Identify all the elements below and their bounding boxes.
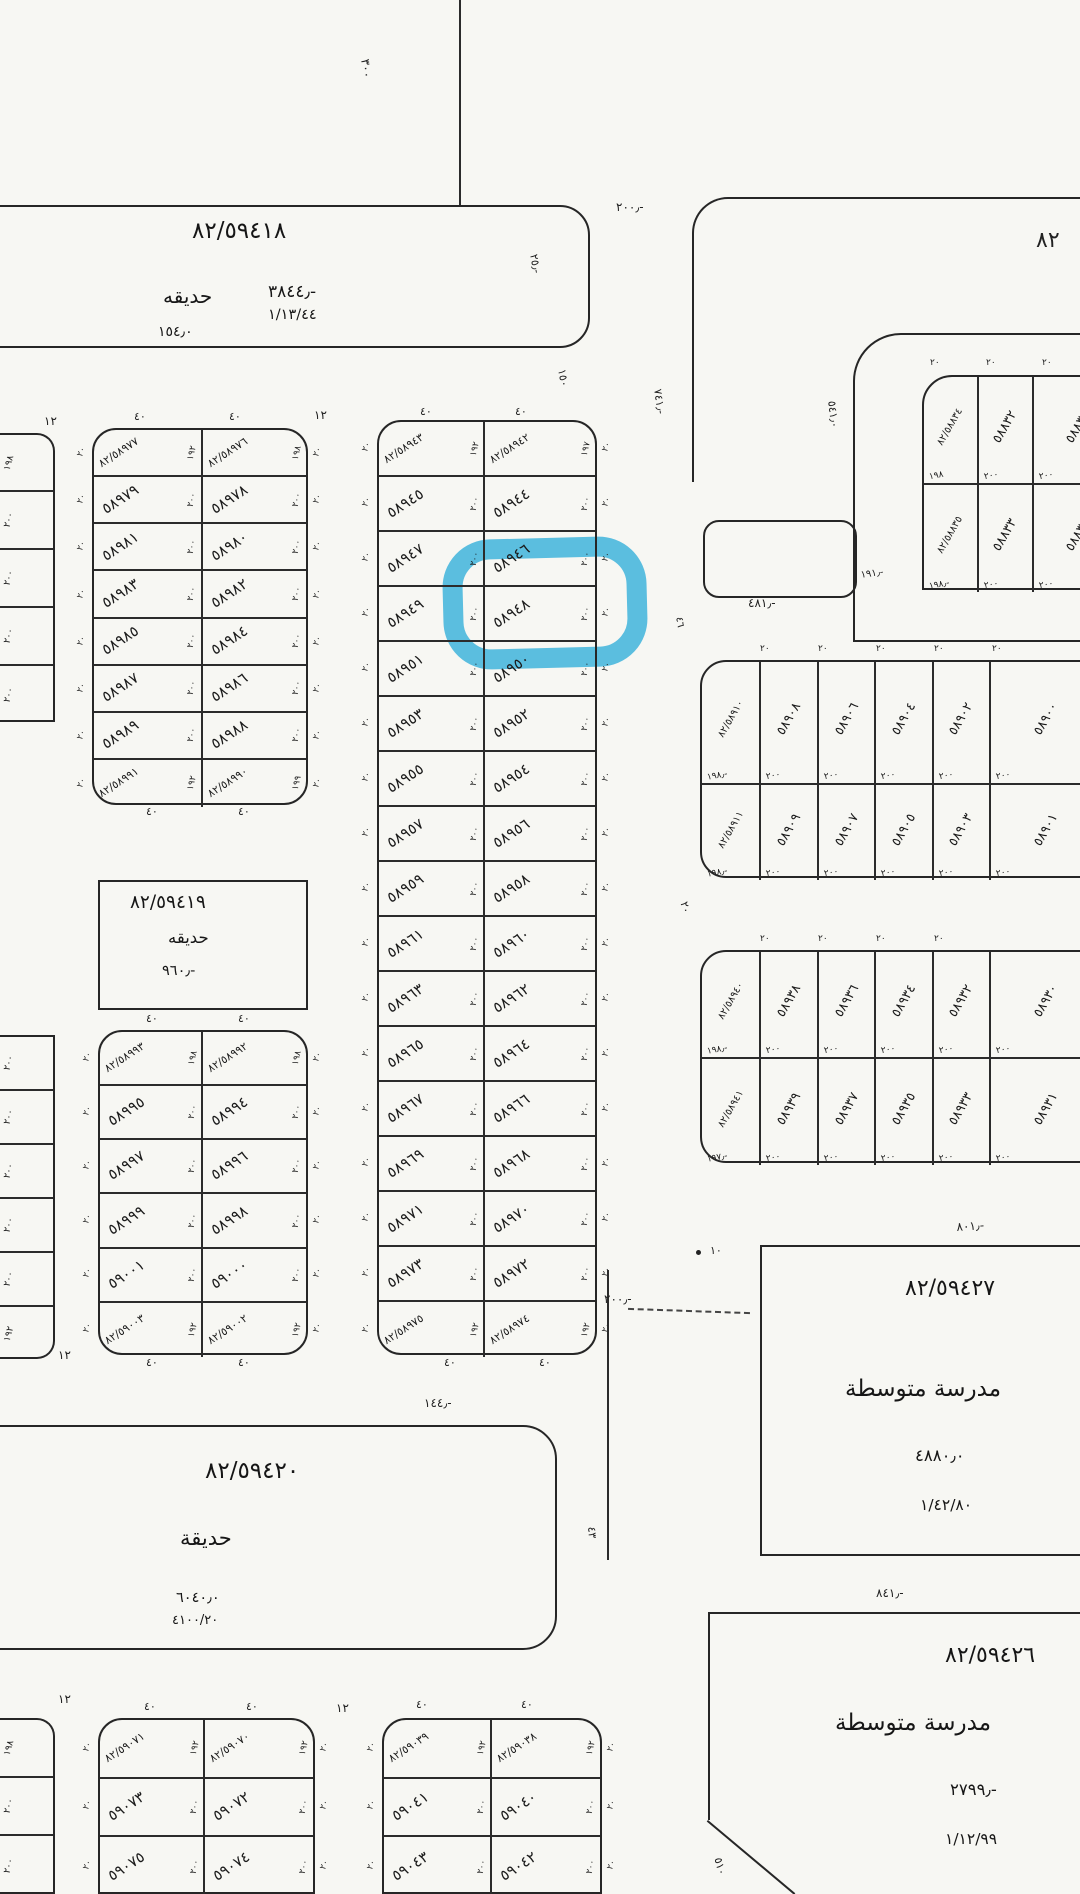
plot-number: ٥٨٩٥٨ <box>489 869 533 906</box>
plot-row: ٢٠٢٠٨٢/٥٨٩٧٥١٩٢٨٢/٥٨٩٧٤١٩٢ <box>379 1302 595 1357</box>
plot-number: ٥٨٩٦٣ <box>383 979 427 1016</box>
dim-label-tick20: ٢٠ <box>930 358 940 368</box>
plot-dimension: ٢٠٠ <box>186 1266 199 1283</box>
plot-number: ٨٢/٥٨٩٧٥ <box>381 1311 426 1346</box>
dim-label-tick20: ٢٠ <box>934 934 944 944</box>
row-width-tick: ٢٠ <box>360 991 373 1004</box>
plot-dimension: ٢٠٠ <box>468 1155 481 1172</box>
plot-dimension: ٢٠٠ <box>468 990 481 1007</box>
plot-cell: ٥٨٩٣١٢٠٠ <box>991 1059 1080 1165</box>
dim-label-a801: ٨٠١٫- <box>956 1218 984 1234</box>
row-width-tick: ٢٠ <box>81 1322 94 1335</box>
plot-number: ٥٨٩٥٤ <box>489 759 533 796</box>
plot-dimension: ٢٠٠ <box>186 1104 199 1121</box>
plot-cell: ٥٨٨٣٢٢٠٠ <box>979 377 1034 483</box>
plot-dimension: ٢٠٠ <box>291 1212 304 1229</box>
plot-row: ٢٠٢٠٥٨٩٦٥٢٠٠٥٨٩٦٤٢٠٠ <box>379 1027 595 1082</box>
block-small-empty <box>703 520 857 598</box>
plot-number: ٥٨٩٣٨ <box>774 982 804 1020</box>
dim-label-w40: ٤٠ <box>146 1356 158 1369</box>
plot-dimension: ٢٠٠ <box>1038 470 1054 482</box>
dim-label-v300: ٣٠٠ <box>358 58 374 79</box>
plot-cell: ٥٨٩٠٢٢٠٠ <box>934 662 991 783</box>
plot-cell: ٥٨٩٠٨٢٠٠ <box>761 662 818 783</box>
row-width-tick: ٢٠ <box>601 716 614 729</box>
edge-strip-lower: ٢٠٠٢٠٠٢٠٠٢٠٠٢٠٠١٩٢ <box>0 1035 55 1359</box>
plot-dimension: ٢٠٠ <box>823 1044 839 1056</box>
plot-number: ٥٨٩٦٧ <box>383 1089 427 1126</box>
plot-cell: ٥٨٩٣٢٢٠٠ <box>934 952 991 1057</box>
block-59427-area: ٤٨٨٠٫٠ <box>915 1446 965 1465</box>
row-width-tick: ٢٠ <box>360 1266 373 1279</box>
plot-dimension: ٢٠٠ <box>291 586 304 603</box>
plot-cell: ٨٢/٥٨٨٣٤١٩٨ <box>924 377 979 483</box>
plot-number: ٨٢/٥٩٠٣٨ <box>494 1730 539 1765</box>
plot-number: ٥٨٩٨٨ <box>207 716 251 753</box>
plot-number: ٥٨٩٦٢ <box>489 979 533 1016</box>
plot-number: ٨٢/٥٨٩٩٣ <box>102 1040 147 1075</box>
plot-number: ٥٨٨٣٣ <box>990 516 1020 554</box>
plot-dimension: ٢٠٠ <box>186 491 199 508</box>
plot-dimension: ٢٠٠ <box>995 867 1011 879</box>
plot-dimension: ٢٠٠ <box>580 1265 593 1282</box>
row-width-tick: ٢٠ <box>601 1156 614 1169</box>
plot-cell: ٥٨٩٦١٢٠٠ <box>379 917 485 970</box>
row-width-tick: ٢٠ <box>360 881 373 894</box>
plot-cell: ٥٨٩٤٦٢٠٠ <box>485 532 595 585</box>
dim-label-v43: ٤٣ <box>585 1526 599 1539</box>
plot-number: ٥٩٠٠١ <box>104 1255 148 1292</box>
plot-number: ٥٨٩٣٣ <box>946 1090 976 1128</box>
plot-dimension: ١٩٨ <box>2 1739 17 1757</box>
edge-plot-cell: ٢٠٠ <box>0 492 53 550</box>
plot-dimension: ١٩٨٫- <box>706 769 728 782</box>
dim-label-a10: ١٠ <box>710 1244 722 1257</box>
plot-number: ٥٨٩٦٥ <box>383 1034 427 1071</box>
plot-cell: ٥٨٩٥٣٢٠٠ <box>379 697 485 750</box>
survey-dashed-line <box>628 1308 750 1314</box>
dim-label-t200: ٢٠٠٫- <box>616 200 644 214</box>
plot-cell: ٥٨٩٩٥٢٠٠ <box>100 1086 203 1138</box>
plot-dimension: ١٩٩ <box>291 775 304 792</box>
plot-dimension: ٢٠٠ <box>580 1045 593 1062</box>
plot-dimension: ١٩٧٫- <box>706 1151 728 1164</box>
plot-number: ٥٨٩٥٣ <box>383 704 427 741</box>
block-59418-id: ٨٢/٥٩٤١٨ <box>192 218 286 244</box>
plot-number: ٥٨٩٣٠ <box>1030 982 1060 1020</box>
plot-cell: ٨٢/٥٨٩٤٠١٩٨٫- <box>702 952 761 1057</box>
plot-dimension: ٢٠٠ <box>468 715 481 732</box>
plot-number: ٥٨٩٣٤ <box>889 982 919 1020</box>
plot-dimension: ٢٠٠ <box>186 633 199 650</box>
plot-dimension: ٢٠٠ <box>580 660 593 677</box>
plot-dimension: ٢٠٠ <box>580 935 593 952</box>
block-59426-id: ٨٢/٥٩٤٢٦ <box>945 1643 1035 1668</box>
plot-dimension: ٢٠٠ <box>880 867 896 879</box>
edge-plot-cell: ٢٠٠ <box>0 1145 53 1199</box>
plot-cell: ٥٨٩٤٧٢٠٠ <box>379 532 485 585</box>
row-width-tick: ٢٠ <box>360 551 373 564</box>
plot-row: ٢٠٢٠٥٨٩٥٧٢٠٠٥٨٩٥٦٢٠٠ <box>379 807 595 862</box>
plot-number: ٥٨٩٣٦ <box>831 982 861 1020</box>
block-59420-area: ٦٠٤٠٫٠ <box>176 1590 220 1606</box>
row-width-tick: ٢٠ <box>319 1858 332 1871</box>
plot-cell: ٥٨٩٤٤٢٠٠ <box>485 477 595 530</box>
row-width-tick: ٢٠ <box>360 936 373 949</box>
row-width-tick: ٢٠ <box>601 441 614 454</box>
plot-dimension: ١٩٢ <box>186 775 199 792</box>
plot-dimension: ٢٠٠ <box>291 633 304 650</box>
plot-cell: ٥٨٩٣٩٢٠٠ <box>761 1059 818 1165</box>
plot-row: ٢٠٢٠٥٨٩٨٩٢٠٠٥٨٩٨٨٢٠٠ <box>94 713 306 760</box>
plot-dimension: ١٩٨ <box>291 1050 304 1067</box>
plot-number: ٥٩٠٧٣ <box>104 1788 148 1825</box>
plot-dimension: ٢٠٠ <box>188 1858 201 1875</box>
row-width-tick: ٢٠ <box>601 1101 614 1114</box>
plot-cell: ٥٨٩٣٥٢٠٠ <box>876 1059 933 1165</box>
plot-number: ٥٨٩٨٧ <box>98 669 142 706</box>
plot-cell: ٥٩٠٧٤٢٠٠ <box>205 1837 313 1894</box>
dim-label-st12: ١٢ <box>44 414 57 428</box>
plot-row: ٢٠٢٠٨٢/٥٨٩٩١١٩٢٨٢/٥٨٩٩٠١٩٩ <box>94 760 306 807</box>
plot-cell: ٥٨٨٣١٢٠٠ <box>1034 485 1080 592</box>
block-59418-ref: ١/١٣/٤٤ <box>268 307 317 323</box>
plot-cell: ٥٩٠٤٣٢٠٠ <box>384 1837 492 1894</box>
plot-cell: ٨٢/٥٨٩٩٠١٩٩ <box>203 760 306 807</box>
plot-number: ٥٨٩٣١ <box>1030 1090 1060 1128</box>
plot-cell: ٥٨٩٨٠٢٠٠ <box>203 524 306 569</box>
plot-dimension: ٢٠٠ <box>291 1266 304 1283</box>
plot-cell-highlighted: ٥٨٩٤٨٢٠٠ <box>485 587 595 640</box>
plot-number: ٨٢/٥٨٩٩١ <box>96 765 141 800</box>
row-width-tick: ٢٠ <box>601 1266 614 1279</box>
plot-number: ٥٨٩٩٨ <box>207 1201 251 1238</box>
plot-grid-left_upper: ٢٠٢٠٨٢/٥٨٩٧٧١٩٢٨٢/٥٨٩٧٦١٩٨٢٠٢٠٥٨٩٧٩٢٠٠٥٨… <box>92 428 308 805</box>
plot-cell: ٥٨٩٧٢٢٠٠ <box>485 1247 595 1300</box>
plot-cell: ٨٢/٥٩٠٠٢١٩٢ <box>203 1303 306 1357</box>
plot-cell: ٨٢/٥٩٠٧٠١٩٢ <box>205 1720 313 1777</box>
row-width-tick: ٢٠ <box>360 771 373 784</box>
plot-dimension: ٢٠٠ <box>291 680 304 697</box>
row-width-tick: ٢٠ <box>75 540 88 553</box>
plot-dimension: ٢٠٠ <box>938 867 954 879</box>
plot-dimension: ١٩٢ <box>186 1322 199 1339</box>
block-59419-area: ٩٦٠٫- <box>162 963 195 979</box>
plot-number: ٥٨٩٤٩ <box>383 594 427 631</box>
dim-label-v741: ٧٤١٫- <box>651 388 667 415</box>
edge-plot-cell: ٢٠٠ <box>0 1091 53 1145</box>
plot-dimension: ١٩٨ <box>928 470 944 482</box>
plot-dimension: ٢٠٠ <box>938 770 954 782</box>
plot-cell: ٥٨٩٠٤٢٠٠ <box>876 662 933 783</box>
plot-dimension: ٢٠٠ <box>766 770 782 782</box>
plot-dimension: ٢٠٠ <box>291 727 304 744</box>
dim-label-tick20: ٢٠ <box>876 644 886 654</box>
dim-label-v150: ١٥٠ <box>555 368 571 388</box>
dim-label-s200: ٢٠٠٫- <box>604 1292 632 1306</box>
plot-row: ٢٠٢٠٥٩٠٤١٢٠٠٥٩٠٤٠٢٠٠ <box>384 1779 600 1838</box>
plot-dimension: ٢٠٠ <box>585 1858 598 1875</box>
plot-grid-right_b: ٨٢/٥٨٩٤٠١٩٨٫-٥٨٩٣٨٢٠٠٥٨٩٣٦٢٠٠٥٨٩٣٤٢٠٠٥٨٩… <box>700 950 1080 1163</box>
plot-dimension: ١٩٨ <box>291 444 304 461</box>
plot-dimension: ١٩٨٫- <box>706 1043 728 1056</box>
edge-strip-top: ١٩٨٢٠٠٢٠٠٢٠٠٢٠٠ <box>0 433 55 722</box>
row-width-tick: ٢٠ <box>312 681 325 694</box>
block-59426-name: مدرسة متوسطة <box>835 1710 991 1736</box>
plot-dimension: ٢٠٠ <box>468 495 481 512</box>
plot-row: ٢٠٢٠٨٢/٥٨٩٤٣١٩٢٨٢/٥٨٩٤٢١٩٧ <box>379 422 595 477</box>
dim-label-tick20: ٢٠ <box>1042 358 1052 368</box>
plot-dimension: ٢٠٠ <box>580 1155 593 1172</box>
plot-row: ٢٠٢٠٥٨٩٦١٢٠٠٥٨٩٦٠٢٠٠ <box>379 917 595 972</box>
plot-dimension: ٢٠٠ <box>468 550 481 567</box>
plot-dimension: ٢٠٠ <box>468 825 481 842</box>
plot-dimension: ٢٠٠ <box>580 770 593 787</box>
row-width-tick: ٢٠ <box>81 1740 94 1753</box>
plot-number: ٨٢/٥٨٩٧٧ <box>96 434 141 469</box>
edge-plot-cell: ١٩٢ <box>0 1307 53 1361</box>
plot-dimension: ١٩٨٫- <box>928 578 950 591</box>
plot-dimension: ٢٠٠ <box>2 511 17 529</box>
plot-cell: ٥٨٩٨٣٢٠٠ <box>94 571 203 616</box>
plot-dimension: ٢٠٠ <box>2 1162 17 1180</box>
block-59427-id: ٨٢/٥٩٤٢٧ <box>905 1276 995 1301</box>
plot-number: ٥٨٨٣١ <box>1063 516 1080 554</box>
plot-cell: ٥٨٩٥٥٢٠٠ <box>379 752 485 805</box>
plot-number: ٨٢/٥٨٩٧٦ <box>205 434 250 469</box>
row-width-tick: ٢٠ <box>312 493 325 506</box>
plot-dimension: ١٩٢ <box>188 1740 201 1757</box>
plot-cell: ٥٨٩٥٢٢٠٠ <box>485 697 595 750</box>
plot-dimension: ٢٠٠ <box>468 770 481 787</box>
plot-row: ٢٠٢٠٥٩٠٧٥٢٠٠٥٩٠٧٤٢٠٠ <box>100 1837 313 1894</box>
plot-grid-top_right: ٨٢/٥٨٨٣٤١٩٨٥٨٨٣٢٢٠٠٥٨٨٣٠٢٠٠٨٢/٥٨٨٣٥١٩٨٫-… <box>922 375 1080 590</box>
row-width-tick: ٢٠ <box>81 1105 94 1118</box>
edge-plot-cell: ١٩٨ <box>0 435 53 492</box>
plot-number: ٨٢/٥٨٩٧٤ <box>487 1311 532 1346</box>
plot-dimension: ٢٠٠ <box>468 605 481 622</box>
dim-label-st12: ١٢ <box>58 1692 71 1706</box>
plot-dimension: ١٩٢ <box>580 1321 593 1338</box>
row-width-tick: ٢٠ <box>365 1740 378 1753</box>
plot-grid-bottom_b: ٢٠٢٠٨٢/٥٩٠٣٩١٩٢٨٢/٥٩٠٣٨١٩٢٢٠٢٠٥٩٠٤١٢٠٠٥٩… <box>382 1718 602 1894</box>
plot-dimension: ٢٠٠ <box>186 727 199 744</box>
plot-cell: ٥٨٩٦٦٢٠٠ <box>485 1082 595 1135</box>
plot-row: ٢٠٢٠٥٨٩٨٣٢٠٠٥٨٩٨٢٢٠٠ <box>94 571 306 618</box>
plot-number: ٥٨٩٨٣ <box>98 575 142 612</box>
block-59419-name: حديقه <box>168 928 209 947</box>
plot-row: ٨٢/٥٨٩٤٠١٩٨٫-٥٨٩٣٨٢٠٠٥٨٩٣٦٢٠٠٥٨٩٣٤٢٠٠٥٨٩… <box>702 952 1080 1059</box>
plot-dimension: ١٩٢ <box>291 1322 304 1339</box>
plot-number: ٥٩٠٤٣ <box>388 1847 432 1884</box>
block-59427-ref: ١/٤٢/٨٠ <box>920 1496 972 1514</box>
plot-number: ٥٨٩٦٤ <box>489 1034 533 1071</box>
plot-dimension: ٢٠٠ <box>823 867 839 879</box>
plot-dimension: ٢٠٠ <box>468 660 481 677</box>
plot-dimension: ١٩٢ <box>298 1740 311 1757</box>
row-width-tick: ٢٠ <box>365 1858 378 1871</box>
plot-number: ٥٨٩٣٧ <box>831 1090 861 1128</box>
plot-cell: ٥٨٩٥٠٢٠٠ <box>485 642 595 695</box>
dim-label-a144: ١٤٤٫- <box>424 1396 452 1410</box>
plot-number: ٥٨٩٩٥ <box>104 1093 148 1130</box>
plot-row: ٢٠٢٠٥٨٩٨٧٢٠٠٥٨٩٨٦٢٠٠ <box>94 666 306 713</box>
plot-number: ٥٨٩٧٣ <box>383 1254 427 1291</box>
plot-cell: ٨٢/٥٨٩٩١١٩٢ <box>94 760 203 807</box>
plot-row: ٢٠٢٠٥٨٩٥١٢٠٠٥٨٩٥٠٢٠٠ <box>379 642 595 697</box>
plot-number: ٥٨٩٥١ <box>383 649 427 686</box>
plot-number: ٥٩٠٠٠ <box>207 1255 251 1292</box>
plot-dimension: ١٩٧ <box>580 440 593 457</box>
plot-number: ٥٨٩٥٧ <box>383 814 427 851</box>
plot-number: ٨٢/٥٨٩١٠ <box>716 698 746 739</box>
dim-label-w40: ٤٠ <box>229 410 241 423</box>
plot-cell: ٥٨٩٧٩٢٠٠ <box>94 477 203 522</box>
dim-label-w40: ٤٠ <box>144 1700 156 1713</box>
plot-cell: ٥٨٩٨٦٢٠٠ <box>203 666 306 711</box>
row-width-tick: ٢٠ <box>601 496 614 509</box>
plot-cell: ٥٨٩٩٤٢٠٠ <box>203 1086 306 1138</box>
plot-cell: ٥٨٩٠٩٢٠٠ <box>761 785 818 880</box>
plot-dimension: ٢٠٠ <box>580 825 593 842</box>
row-width-tick: ٢٠ <box>360 826 373 839</box>
edge-plot-cell: ٢٠٠ <box>0 1253 53 1307</box>
plot-number: ٨٢/٥٨٩٤٣ <box>381 430 426 465</box>
plot-number: ٥٩٠٧٢ <box>209 1788 253 1825</box>
plot-number: ٥٨٩٠٨ <box>774 700 804 738</box>
row-width-tick: ٢٠ <box>360 1101 373 1114</box>
plot-cell: ٥٨٩٣٧٢٠٠ <box>819 1059 876 1165</box>
plot-cell: ٥٨٩٠٧٢٠٠ <box>819 785 876 880</box>
dim-label-a481: ٤٨١٫- <box>748 596 776 610</box>
plot-number: ٥٨٨٣٢ <box>990 408 1020 446</box>
row-width-tick: ٢٠ <box>601 936 614 949</box>
plot-dimension: ٢٠٠ <box>880 1152 896 1164</box>
plot-dimension: ٢٠٠ <box>880 1044 896 1056</box>
plot-number: ٥٨٩٧٨ <box>207 480 251 517</box>
edge-plot-cell: ٢٠٠ <box>0 550 53 608</box>
edge-plot-cell: ٢٠٠ <box>0 1778 53 1836</box>
plot-dimension: ٢٠٠ <box>2 1857 17 1875</box>
plot-dimension: ٢٠٠ <box>2 569 17 587</box>
dim-label-st12: ١٢ <box>58 1348 71 1362</box>
plot-cell: ٨٢/٥٩٠٠٣١٩٢ <box>100 1303 203 1357</box>
plot-dimension: ٢٠٠ <box>2 686 17 704</box>
plot-cell: ٨٢/٥٨٩٩٢١٩٨ <box>203 1032 306 1084</box>
plot-dimension: ٢٠٠ <box>983 470 999 482</box>
plot-number: ٥٨٩٥٥ <box>383 759 427 796</box>
plot-number: ٥٨٩٧٠ <box>489 1199 533 1236</box>
plot-dimension: ٢٠٠ <box>2 1270 17 1288</box>
plot-cell: ٥٨٩٨٤٢٠٠ <box>203 619 306 664</box>
block-59420-id: ٨٢/٥٩٤٢٠ <box>205 1458 299 1484</box>
plot-cell: ٨٢/٥٨٩٤١١٩٧٫- <box>702 1059 761 1165</box>
plot-cell: ٨٢/٥٨٩٧٥١٩٢ <box>379 1302 485 1357</box>
row-width-tick: ٢٠ <box>312 776 325 789</box>
plot-number: ٥٨٩٩٦ <box>207 1147 251 1184</box>
plot-cell: ٨٢/٥٨٩٧٦١٩٨ <box>203 430 306 475</box>
dim-label-w40: ٤٠ <box>238 1012 250 1025</box>
row-width-tick: ٢٠ <box>360 661 373 674</box>
plot-number: ٥٨٩٩٤ <box>207 1093 251 1130</box>
plot-cell: ٥٨٩٧١٢٠٠ <box>379 1192 485 1245</box>
plot-number: ٥٨٩٥٦ <box>489 814 533 851</box>
dim-label-st12: ١٢ <box>314 408 327 422</box>
plot-number: ٥٨٩٦١ <box>383 924 427 961</box>
plot-number: ٥٩٠٤٠ <box>496 1788 540 1825</box>
plot-number: ٥٨٩٠٩ <box>774 811 804 849</box>
street-line-mid-right <box>607 1270 609 1560</box>
row-width-tick: ٢٠ <box>606 1740 619 1753</box>
plot-number: ٥٨٩٨٥ <box>98 622 142 659</box>
plot-cell: ٨٢/٥٨٩٧٤١٩٢ <box>485 1302 595 1357</box>
plot-cell: ٥٩٠٧٣٢٠٠ <box>100 1779 205 1836</box>
plot-cell: ٥٨٩٥٤٢٠٠ <box>485 752 595 805</box>
row-width-tick: ٢٠ <box>75 493 88 506</box>
plot-cell: ٥٨٩٨٩٢٠٠ <box>94 713 203 758</box>
plot-row: ٢٠٢٠٨٢/٥٩٠٧١١٩٢٨٢/٥٩٠٧٠١٩٢ <box>100 1720 313 1779</box>
dim-label-w40: ٤٠ <box>444 1356 456 1369</box>
plot-cell: ٥٨٩٦٨٢٠٠ <box>485 1137 595 1190</box>
plot-cell: ٥٨٩٧٣٢٠٠ <box>379 1247 485 1300</box>
plot-number: ٥٨٩٣٥ <box>889 1090 919 1128</box>
row-width-tick: ٢٠ <box>312 587 325 600</box>
plot-row: ٢٠٢٠٥٨٩٩٩٢٠٠٥٨٩٩٨٢٠٠ <box>100 1194 306 1248</box>
cadastral-map-canvas: ٨٢/٥٩٤١٨ حديقه ٣٨٤٤٫- ١/١٣/٤٤ ١٥٤٫٠ ٨٢/٥… <box>0 0 1080 1894</box>
row-width-tick: ٢٠ <box>319 1740 332 1753</box>
dim-label-w40: ٤٠ <box>134 410 146 423</box>
plot-cell: ٥٨٩٦٩٢٠٠ <box>379 1137 485 1190</box>
row-width-tick: ٢٠ <box>601 991 614 1004</box>
plot-number: ٥٨٩٠٢ <box>946 700 976 738</box>
row-width-tick: ٢٠ <box>312 729 325 742</box>
plot-cell: ٥٨٩٣٣٢٠٠ <box>934 1059 991 1165</box>
plot-dimension: ٢٠٠ <box>291 539 304 556</box>
plot-number: ٥٨٩٨٤ <box>207 622 251 659</box>
plot-number: ٥٨٩٨١ <box>98 527 142 564</box>
row-width-tick: ٢٠ <box>312 1050 325 1063</box>
row-width-tick: ٢٠ <box>75 776 88 789</box>
plot-number: ٥٨٩٣٢ <box>946 982 976 1020</box>
plot-dimension: ١٩٨ <box>186 1050 199 1067</box>
plot-number: ٥٨٩٥٩ <box>383 869 427 906</box>
plot-row: ٢٠٢٠٥٨٩٧١٢٠٠٥٨٩٧٠٢٠٠ <box>379 1192 595 1247</box>
plot-grid-right_a: ٨٢/٥٨٩١٠١٩٨٫-٥٨٩٠٨٢٠٠٥٨٩٠٦٢٠٠٥٨٩٠٤٢٠٠٥٨٩… <box>700 660 1080 878</box>
plot-number: ٨٢/٥٩٠٧٠ <box>207 1730 252 1765</box>
dim-label-w40: ٤٠ <box>246 1700 258 1713</box>
row-width-tick: ٢٠ <box>75 729 88 742</box>
plot-cell: ٥٨٩٠٥٢٠٠ <box>876 785 933 880</box>
plot-row: ٢٠٢٠٥٨٩٤٧٢٠٠٥٨٩٤٦٢٠٠ <box>379 532 595 587</box>
plot-dimension: ١٩٢ <box>468 1321 481 1338</box>
plot-dimension: ٢٠٠ <box>995 770 1011 782</box>
plot-cell: ٥٨٨٣٠٢٠٠ <box>1034 377 1080 483</box>
block-59418-name: حديقه <box>163 284 212 308</box>
plot-dimension: ٢٠٠ <box>580 990 593 1007</box>
row-width-tick: ٢٠ <box>312 1159 325 1172</box>
plot-number: ٨٢/٥٨٩٤١ <box>716 1088 746 1129</box>
plot-cell: ٥٨٩٨٥٢٠٠ <box>94 619 203 664</box>
row-width-tick: ٢٠ <box>81 1213 94 1226</box>
plot-dimension: ٢٠٠ <box>580 880 593 897</box>
block-59420-ref: ٤١٠٠/٢٠ <box>172 1613 218 1628</box>
plot-dimension: ٢٠٠ <box>298 1799 311 1816</box>
plot-dimension: ٢٠٠ <box>468 1045 481 1062</box>
plot-row: ٢٠٢٠٥٨٩٨١٢٠٠٥٨٩٨٠٢٠٠ <box>94 524 306 571</box>
plot-dimension: ١٩٢ <box>186 444 199 461</box>
plot-cell: ٥٨٩٧٠٢٠٠ <box>485 1192 595 1245</box>
plot-dimension: ٢٠٠ <box>995 1044 1011 1056</box>
